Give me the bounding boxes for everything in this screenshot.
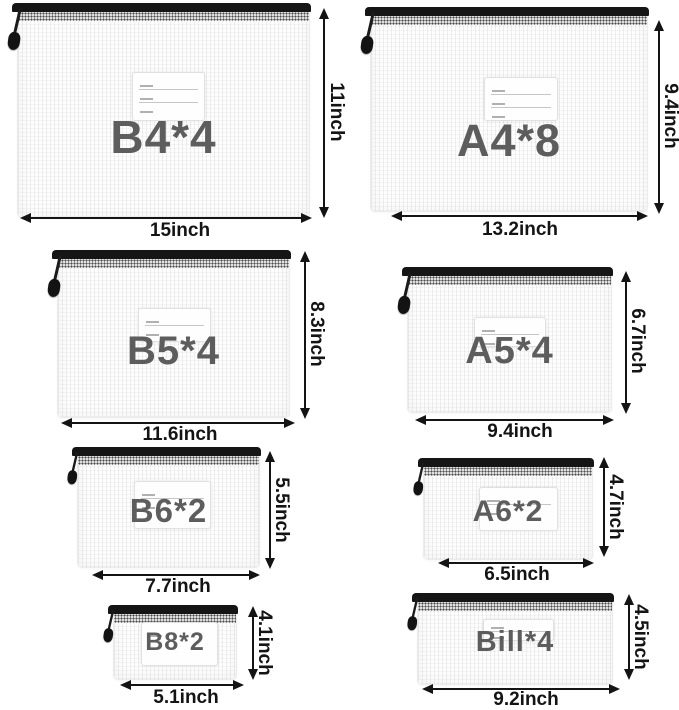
width-dimension-arrow: [393, 215, 646, 217]
zipper-strip: [52, 250, 291, 259]
zipper-strip: [402, 267, 613, 276]
width-dimension-label: 15inch: [150, 220, 210, 242]
bag-size-text: B6*2: [78, 494, 259, 527]
zipper-strip: [365, 7, 649, 16]
mesh-bag-a4: A4*8: [370, 7, 648, 212]
zipper-pull-icon: [6, 6, 28, 58]
zipper-teeth: [408, 276, 611, 285]
card-line: [491, 85, 551, 95]
width-dimension-arrow: [122, 684, 242, 686]
mesh-zipper-bag-size-diagram: B4*4 15inch 11inch A4*8 13.2inch 9.4inch…: [0, 0, 679, 710]
mesh-bag-b6: B6*2: [77, 447, 260, 568]
height-dimension-label: 11inch: [325, 82, 347, 141]
width-dimension-label: 9.2inch: [493, 689, 558, 710]
mesh-bag-bill: Bill*4: [417, 593, 613, 685]
zipper-teeth: [371, 16, 647, 25]
zipper-teeth: [418, 602, 612, 611]
zipper-pull-icon: [46, 253, 68, 305]
width-dimension-label: 11.6inch: [143, 424, 218, 446]
bag-size-text: B8*2: [114, 630, 236, 655]
width-dimension-label: 6.5inch: [484, 564, 549, 586]
height-dimension-label: 9.4inch: [659, 83, 679, 148]
width-dimension-label: 13.2inch: [482, 219, 558, 241]
mesh-bag-b8: B8*2: [113, 605, 237, 680]
width-dimension-arrow: [22, 217, 310, 219]
mesh-bag-a5: A5*4: [407, 267, 612, 413]
zipper-pull-icon: [359, 10, 381, 62]
zipper-strip: [418, 458, 594, 467]
zipper-teeth: [18, 12, 309, 21]
mesh-bag-a6: A6*2: [423, 458, 593, 560]
bag-size-text: B4*4: [18, 114, 309, 160]
zipper-pull-icon: [396, 270, 418, 322]
card-line: [145, 316, 204, 326]
width-dimension-label: 9.4inch: [487, 421, 552, 443]
card-line: [139, 93, 198, 103]
mesh-bag-b4: B4*4: [17, 3, 310, 218]
zipper-strip: [412, 593, 614, 602]
height-dimension-label: 8.3inch: [305, 301, 327, 366]
height-dimension-label: 6.7inch: [626, 308, 648, 373]
height-dimension-label: 4.5inch: [629, 604, 651, 669]
bag-size-text: A6*2: [424, 497, 592, 527]
zipper-strip: [108, 605, 238, 614]
bag-size-text: A5*4: [408, 332, 611, 370]
zipper-teeth: [424, 467, 592, 476]
zipper-strip: [12, 3, 311, 12]
zipper-teeth: [78, 456, 259, 465]
card-line: [139, 80, 198, 90]
zipper-pull-icon: [412, 461, 429, 502]
height-dimension-label: 4.7inch: [604, 474, 626, 539]
bag-size-text: B5*4: [58, 331, 289, 371]
width-dimension-label: 7.7inch: [145, 576, 210, 598]
height-dimension-label: 5.5inch: [270, 477, 292, 542]
zipper-strip: [72, 447, 261, 456]
width-dimension-label: 5.1inch: [153, 687, 218, 709]
zipper-pull-icon: [66, 450, 83, 491]
bag-size-text: A4*8: [371, 118, 647, 163]
mesh-bag-b5: B5*4: [57, 250, 290, 418]
zipper-teeth: [58, 259, 289, 268]
bag-size-text: Bill*4: [418, 628, 612, 657]
height-dimension-label: 4.1inch: [253, 610, 275, 675]
card-line: [491, 98, 551, 108]
